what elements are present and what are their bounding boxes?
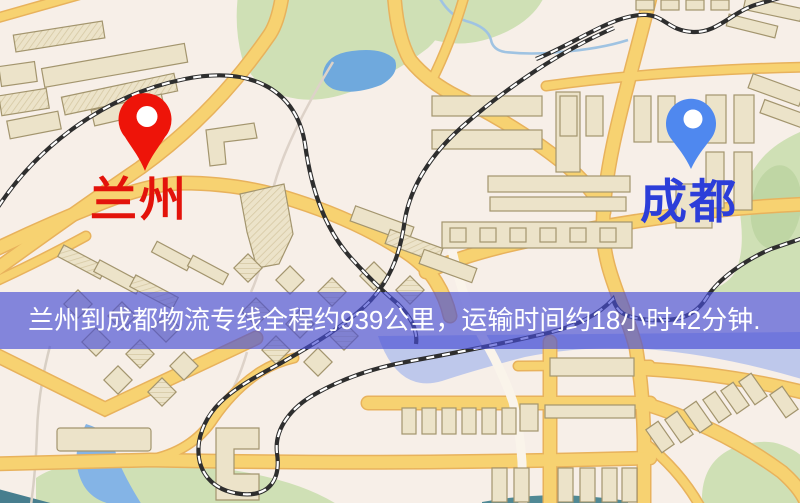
- route-info-banner: 兰州到成都物流专线全程约939公里，运输时间约18小时42分钟.: [0, 292, 800, 349]
- map-canvas: [0, 0, 800, 503]
- destination-city-label: 成都: [640, 178, 738, 225]
- origin-city-label: 兰州: [90, 176, 188, 223]
- map-screenshot: 兰州 成都 兰州到成都物流专线全程约939公里，运输时间约18小时42分钟.: [0, 0, 800, 503]
- route-info-text: 兰州到成都物流专线全程约939公里，运输时间约18小时42分钟.: [0, 305, 760, 335]
